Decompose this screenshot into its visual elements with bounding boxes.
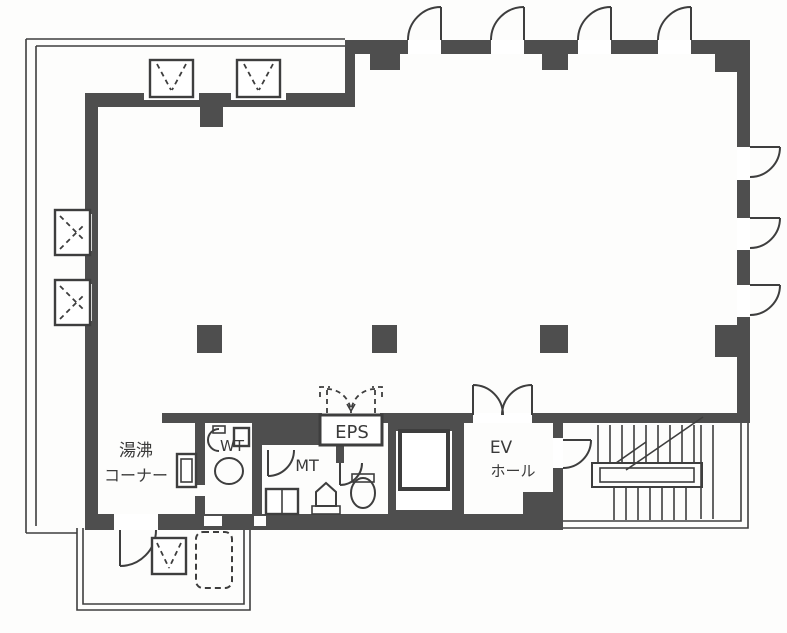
stair-treads-lower <box>614 487 686 520</box>
equipment-pad-outline <box>196 532 232 588</box>
pier <box>370 54 400 70</box>
ev-double-door-icon <box>473 385 532 415</box>
door-right-1-icon <box>750 147 780 177</box>
elevator-car-icon <box>400 431 448 489</box>
door-top-3-icon <box>578 7 611 40</box>
kitchenette-label-line2: コーナー <box>104 466 168 485</box>
kitchenette-label-line1: 湯沸 <box>119 441 153 461</box>
ev-hall-label-line2: ホール <box>490 462 535 480</box>
column <box>540 325 568 353</box>
door-right-2-icon <box>750 218 780 248</box>
elevator-shaft <box>388 423 464 514</box>
annex-door-icon <box>120 530 156 566</box>
eps-label: EPS <box>335 422 369 443</box>
ev-hall-label-line1: EV <box>490 438 513 458</box>
ev-hall: EV ホール <box>473 385 591 514</box>
wall-service-top <box>162 413 750 423</box>
stairwell <box>592 417 713 520</box>
kitchenette: 湯沸 コーナー <box>104 413 205 514</box>
floor-plan-drawing: 湯沸 コーナー WT MT EPS <box>0 0 787 633</box>
vent-box-icon <box>150 60 193 97</box>
mt-door-icon <box>268 450 294 476</box>
stair-door-icon <box>563 440 591 468</box>
eps-shaft: EPS <box>320 387 382 445</box>
pier <box>200 107 223 127</box>
door-top-1-icon <box>408 7 441 40</box>
column <box>197 325 222 353</box>
door-right-3-icon <box>750 285 780 315</box>
column <box>372 325 397 353</box>
bottom-annex <box>120 530 232 588</box>
urinal-icon <box>316 483 336 506</box>
pier <box>715 54 739 72</box>
wt-toilet-icon <box>215 458 243 484</box>
wall-top-left <box>88 93 350 107</box>
eps-door-icon <box>320 387 382 413</box>
stair-treads-upper <box>598 425 694 463</box>
door-top-2-icon <box>491 7 524 40</box>
vent-box-icon <box>237 60 280 97</box>
stair-landing <box>592 463 702 487</box>
floor-plan-page: 湯沸 コーナー WT MT EPS <box>0 0 787 633</box>
door-top-4-icon <box>658 7 691 40</box>
wall-junction <box>345 40 355 107</box>
pier <box>542 54 568 70</box>
mt-label: MT <box>295 456 319 475</box>
pier <box>715 325 737 357</box>
wt-label: WT <box>220 437 245 455</box>
